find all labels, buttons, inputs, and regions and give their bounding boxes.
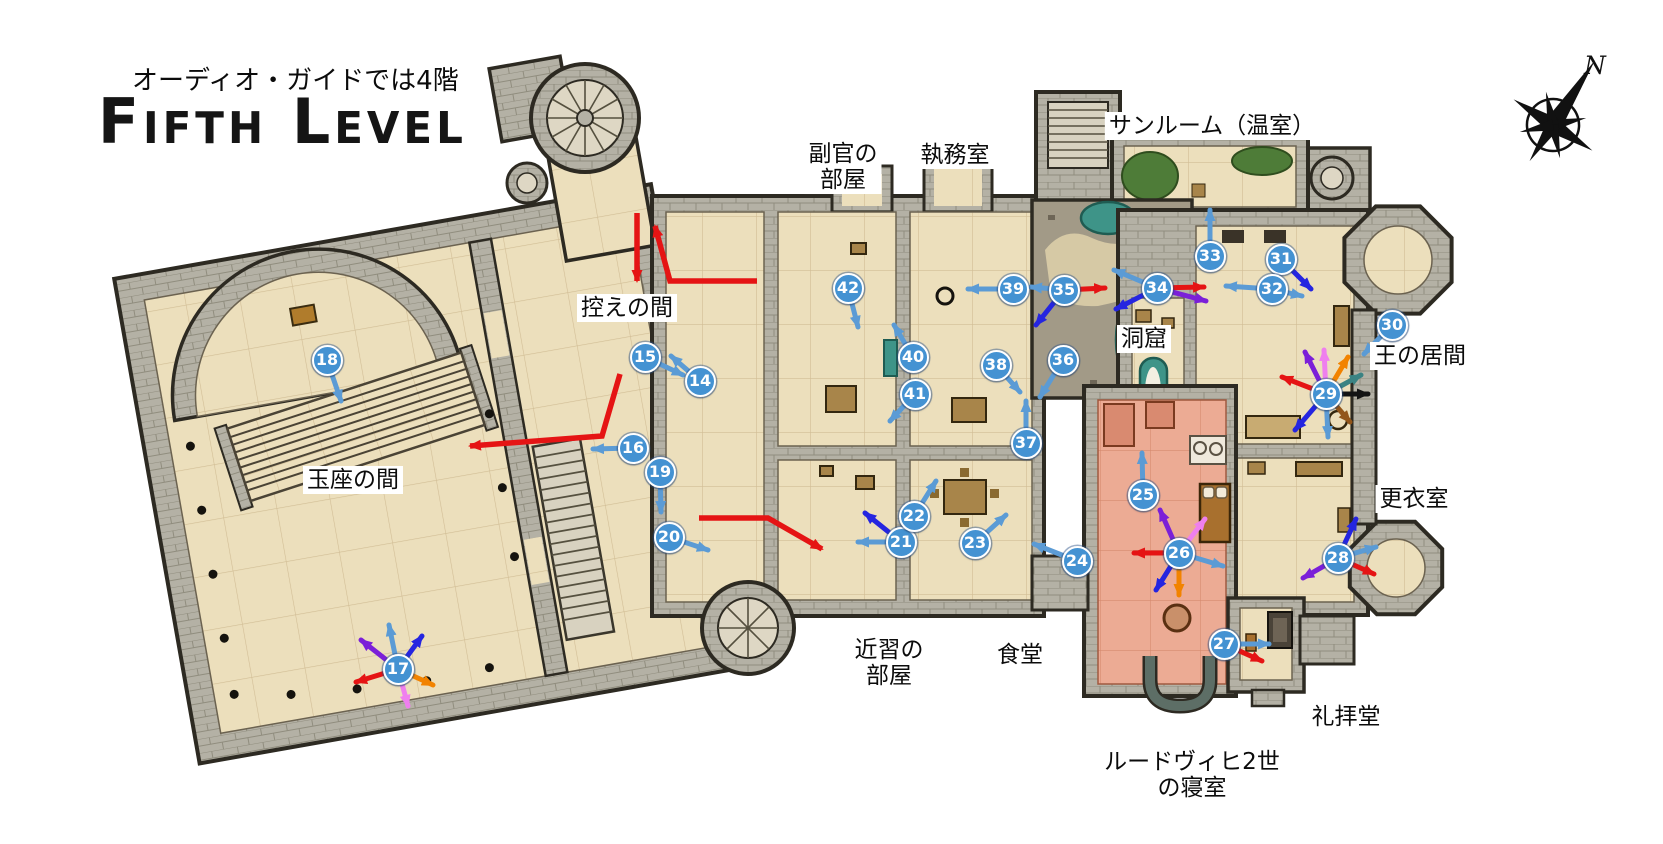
- marker-38-arrow-1-lightblue: [1007, 377, 1020, 392]
- marker-28-arrow-2-lightblue: [1353, 547, 1376, 554]
- marker-22-arrow-1-lightblue: [923, 481, 936, 502]
- marker-28-arrow-4-purple: [1303, 566, 1324, 578]
- marker-34-arrow-2-blue: [1116, 295, 1143, 309]
- marker-41-arrow-1-lightblue: [890, 406, 904, 421]
- marker-32-arrow-1-lightblue: [1226, 286, 1256, 288]
- marker-17-arrow-2-blue: [407, 636, 422, 656]
- marker-17-arrow-1-lightblue: [389, 625, 395, 653]
- marker-26-arrow-4-lightblue: [1194, 558, 1223, 566]
- marker-27-arrow-2-red: [1239, 651, 1262, 661]
- marker-23-arrow-1-lightblue: [987, 515, 1006, 532]
- marker-24-arrow-1-lightblue: [1034, 544, 1062, 555]
- marker-17-arrow-4-red: [356, 674, 383, 682]
- arrows-overlay: [0, 0, 1663, 844]
- marker-25-arrow-1-lightblue: [1142, 453, 1143, 479]
- marker-29-arrow-8-lightblue: [1327, 410, 1328, 437]
- route-arrow-4: [699, 518, 822, 549]
- marker-29-arrow-5-teal: [1340, 375, 1361, 386]
- castle-floorplan-page: N サンルーム（温室）副官の 部屋執務室控えの間洞窟王の居間玉座の間更衣室近習の…: [0, 0, 1663, 844]
- route-arrow-2: [655, 226, 757, 281]
- marker-17-arrow-5-orange: [413, 676, 433, 685]
- marker-29-arrow-1-red: [1282, 377, 1311, 388]
- marker-40-arrow-1-lightblue: [894, 325, 905, 343]
- marker-34-arrow-1-lightblue: [1114, 270, 1142, 282]
- marker-42-arrow-1-lightblue: [852, 303, 858, 327]
- marker-34-arrow-4-purple: [1172, 292, 1206, 301]
- marker-17-arrow-3-purple: [361, 640, 385, 659]
- marker-35-arrow-3-blue: [1036, 302, 1054, 325]
- marker-20-arrow-1-lightblue: [684, 542, 708, 550]
- marker-34-arrow-3-red: [1173, 287, 1204, 288]
- marker-35-arrow-2-red: [1080, 288, 1105, 289]
- marker-26-arrow-1-purple: [1160, 510, 1173, 538]
- marker-32-arrow-2-lightblue: [1288, 293, 1302, 296]
- marker-29-arrow-2-purple: [1305, 352, 1319, 380]
- marker-21-arrow-1-blue: [865, 513, 889, 532]
- marker-29-arrow-3-pink: [1324, 350, 1325, 378]
- marker-29-arrow-7-brown: [1336, 406, 1350, 422]
- marker-17-arrow-6-pink: [402, 684, 408, 706]
- marker-29-arrow-9-blue: [1295, 406, 1316, 430]
- marker-28-arrow-3-red: [1353, 564, 1374, 574]
- marker-29-arrow-4-orange: [1334, 357, 1348, 380]
- marker-35-arrow-1-lightblue: [1031, 287, 1048, 289]
- marker-18-arrow-1-lightblue: [332, 375, 341, 401]
- marker-31-arrow-1-blue: [1292, 270, 1311, 289]
- marker-16-arrow-1-lightblue: [593, 448, 617, 449]
- marker-26-arrow-5-blue: [1156, 567, 1171, 590]
- marker-30-arrow-1-lightblue: [1364, 337, 1381, 354]
- marker-26-arrow-2-pink: [1189, 519, 1205, 540]
- route-arrow-3: [470, 374, 620, 446]
- marker-36-arrow-1-lightblue: [1040, 374, 1055, 397]
- marker-28-arrow-1-blue: [1345, 519, 1356, 543]
- marker-19-arrow-1-lightblue: [660, 488, 661, 512]
